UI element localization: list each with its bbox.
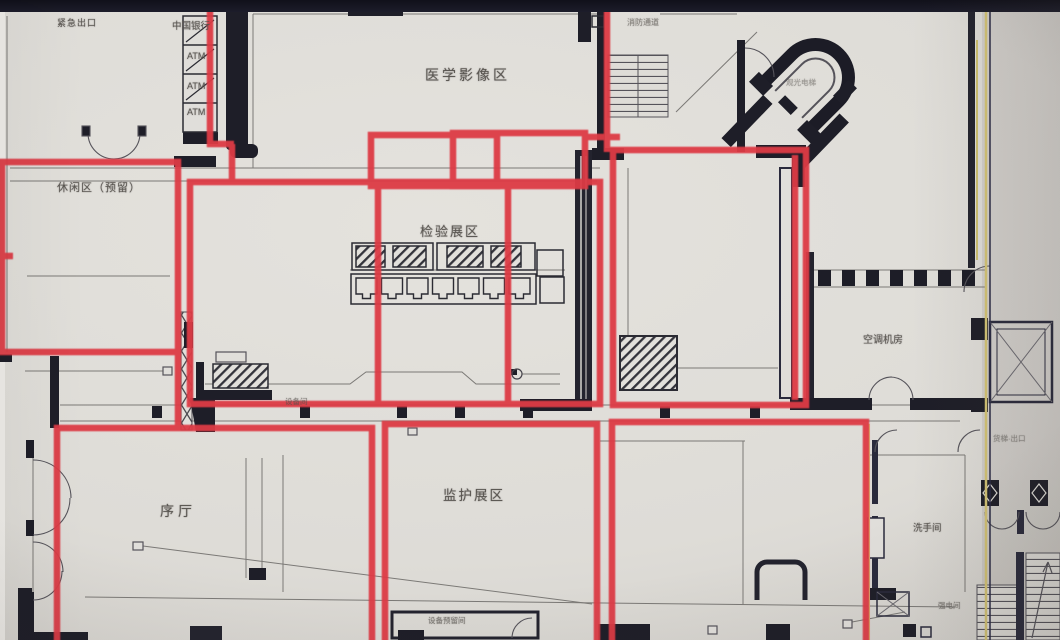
- elevator-shaft: [990, 322, 1052, 402]
- walls-layer: [0, 0, 1060, 640]
- monitor-bezel: [0, 0, 1060, 12]
- label-prologue-hall: 序厅: [160, 504, 196, 518]
- label-equipment-reserve-room: 设备预留间: [428, 617, 466, 625]
- label-freight-exit: 货梯·出口: [993, 435, 1026, 443]
- label-electrical-room: 强电间: [938, 602, 961, 610]
- inspection-equipment: [351, 243, 564, 304]
- annotated-floorplan-photo: 紧急出口 中国银行 ATM ATM ATM 医学影像区 消防通道 观光电梯 休闲…: [0, 0, 1060, 640]
- floorplan-drawing: [0, 0, 1060, 640]
- label-atm-1: ATM: [187, 52, 205, 61]
- label-atm-3: ATM: [187, 108, 205, 117]
- exam-booths: [356, 278, 530, 299]
- label-emergency-exit: 紧急出口: [57, 19, 97, 28]
- stairs-top: [608, 55, 668, 117]
- hvac-crenellation: [818, 270, 975, 286]
- label-bank: 中国银行: [172, 22, 210, 32]
- label-atm-2: ATM: [187, 82, 205, 91]
- label-inspection-area: 检验展区: [420, 225, 480, 238]
- b3-furniture: [757, 562, 805, 600]
- label-hvac-room: 空调机房: [863, 336, 903, 346]
- label-fire-passage: 消防通道: [627, 19, 659, 27]
- red-annotations-layer: [0, 0, 866, 640]
- label-sightseeing-elevator: 观光电梯: [786, 79, 816, 87]
- label-leisure-area: 休闲区（预留）: [57, 183, 141, 194]
- label-equipment-room: 设备间: [285, 398, 308, 406]
- label-imaging-area: 医学影像区: [425, 68, 510, 82]
- label-monitoring-area: 监护展区: [443, 489, 505, 503]
- vent-boxes: [981, 480, 1048, 506]
- label-restroom: 洗手间: [913, 524, 942, 534]
